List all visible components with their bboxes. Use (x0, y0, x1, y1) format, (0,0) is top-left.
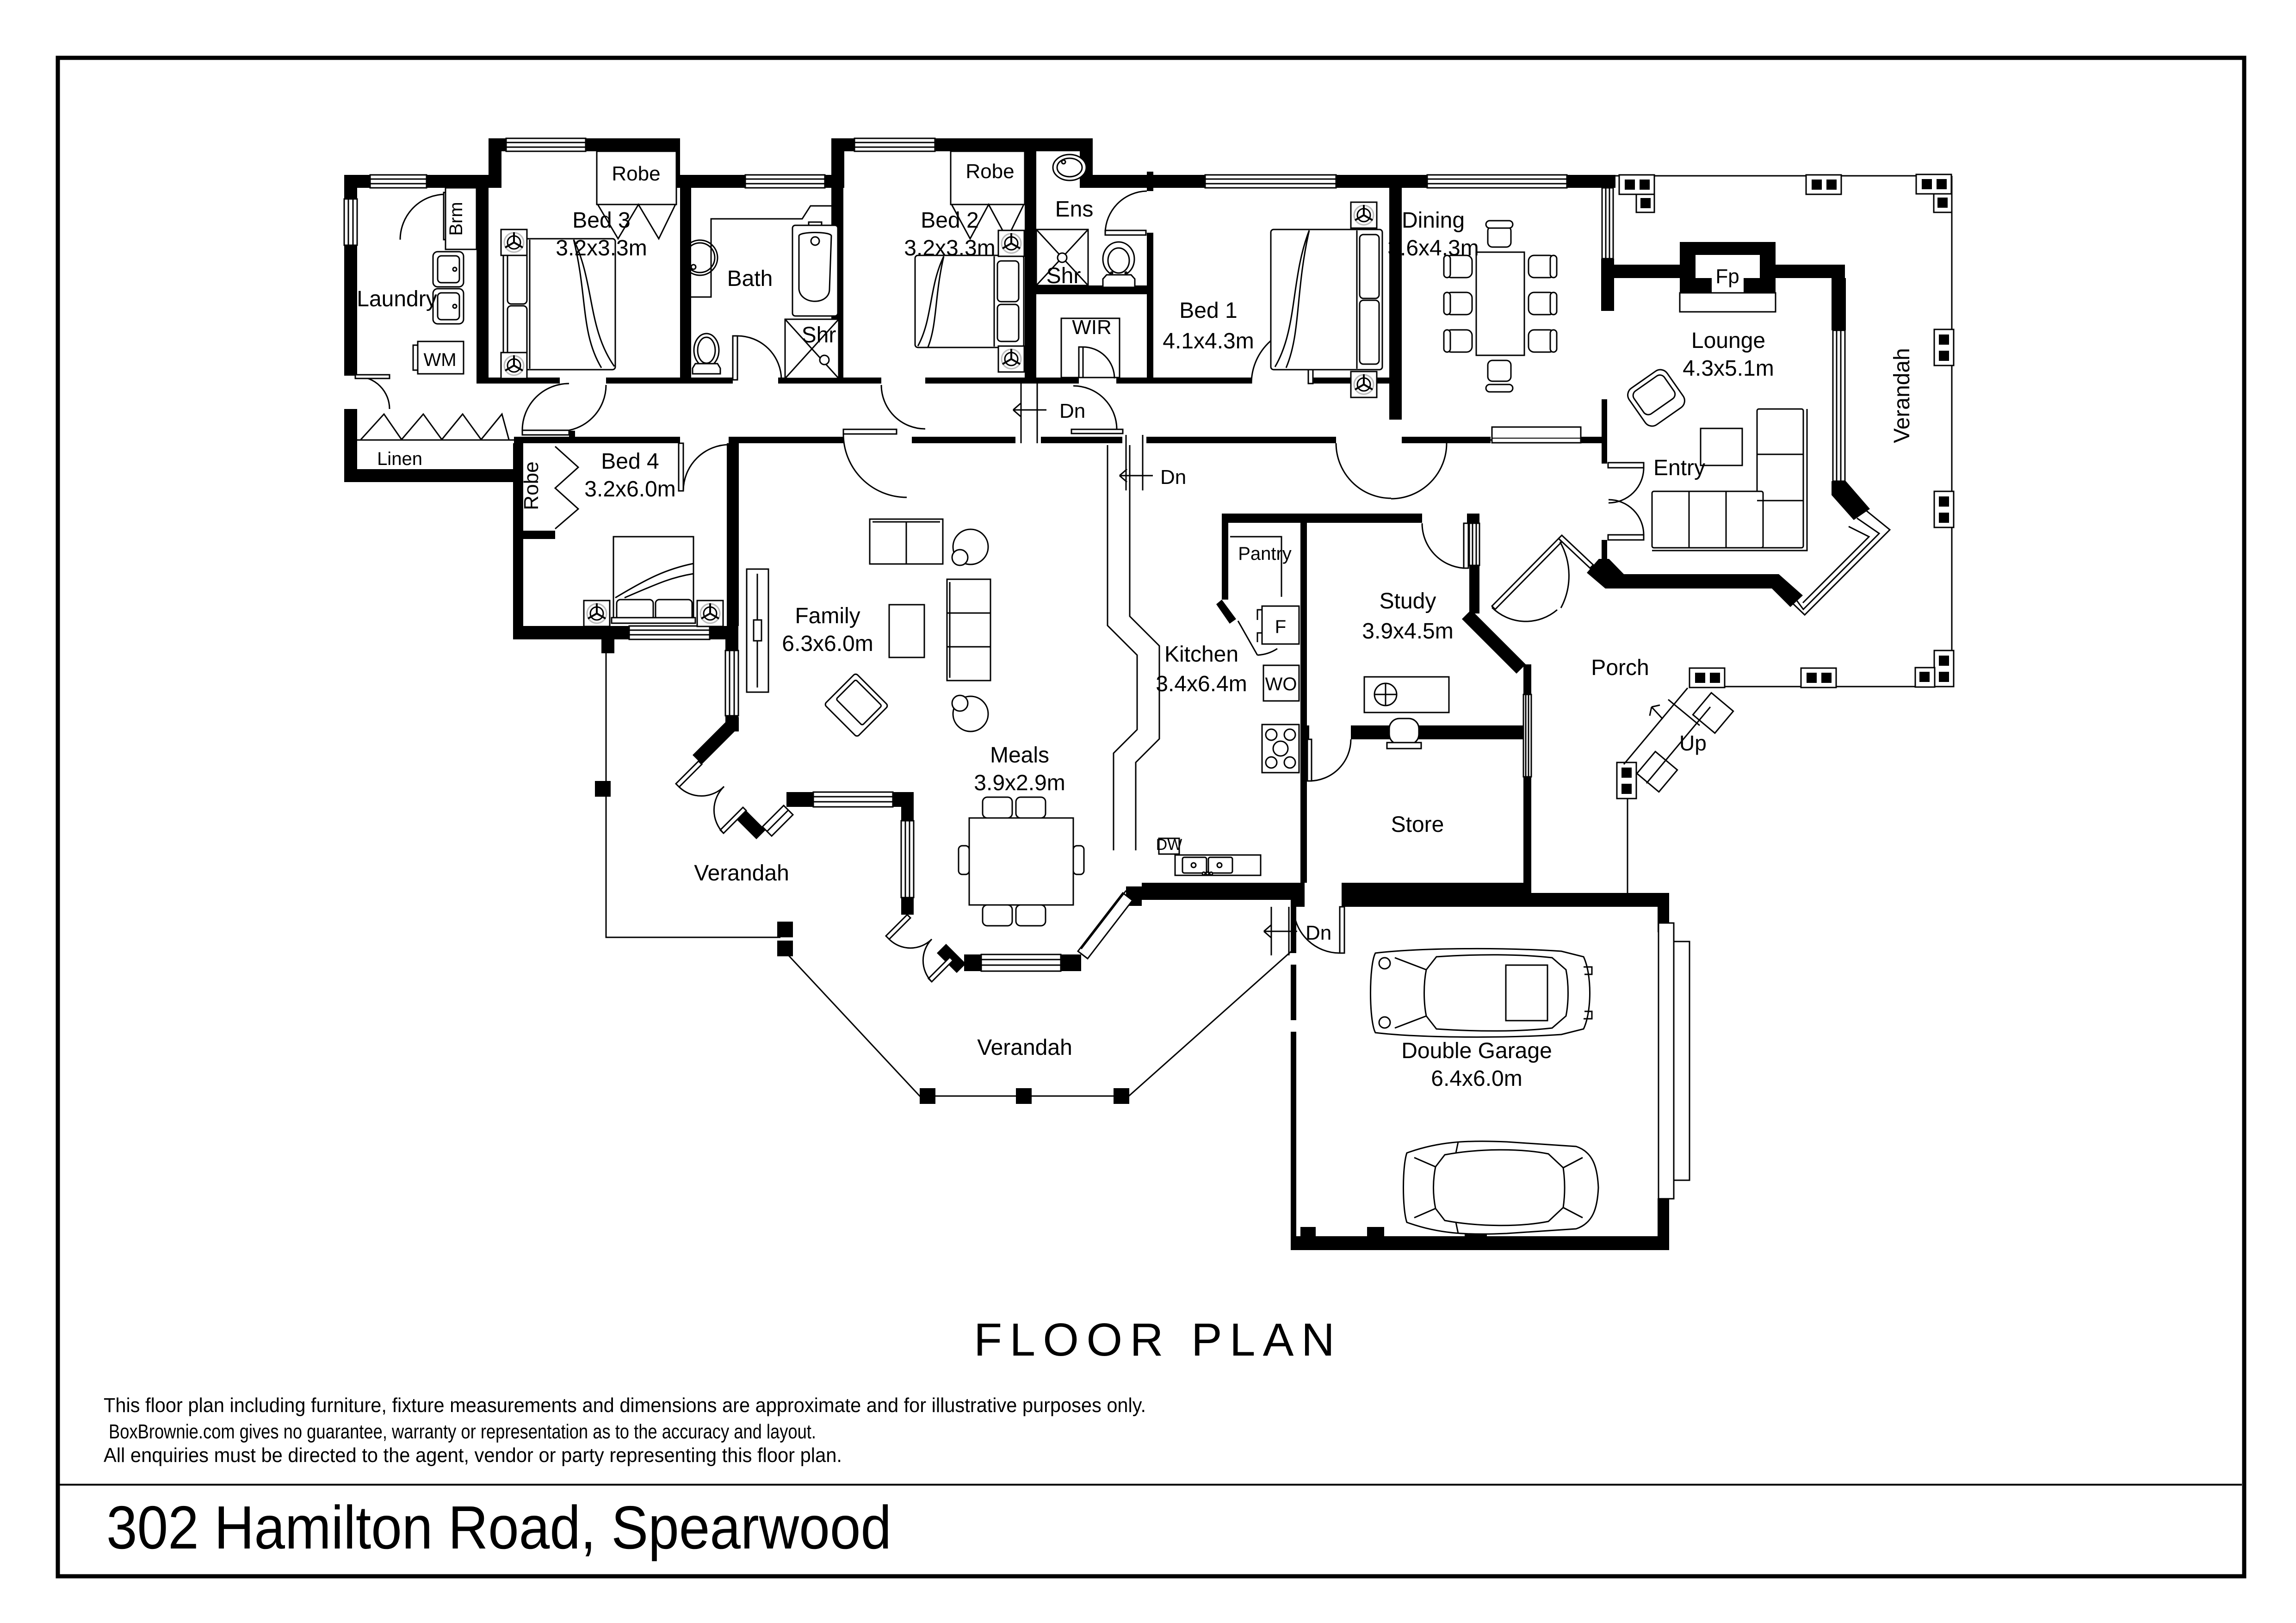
svg-text:6.4x6.0m: 6.4x6.0m (1431, 1066, 1522, 1091)
svg-text:Verandah: Verandah (977, 1035, 1072, 1060)
svg-text:Shr: Shr (1046, 264, 1081, 288)
svg-text:4.1x4.3m: 4.1x4.3m (1163, 329, 1254, 353)
svg-text:Bath: Bath (727, 266, 773, 291)
svg-text:Dn: Dn (1059, 400, 1085, 422)
svg-text:Robe: Robe (612, 162, 660, 185)
svg-text:Verandah: Verandah (694, 861, 789, 886)
svg-text:Shr: Shr (802, 323, 836, 347)
svg-text:Pantry: Pantry (1238, 544, 1292, 564)
svg-text:6.3x6.0m: 6.3x6.0m (782, 632, 873, 656)
svg-text:Double Garage: Double Garage (1401, 1039, 1552, 1063)
svg-text:4.3x5.1m: 4.3x5.1m (1683, 356, 1774, 381)
svg-text:Fp: Fp (1715, 265, 1739, 288)
svg-text:3.9x2.9m: 3.9x2.9m (974, 771, 1065, 795)
svg-text:BoxBrownie.com gives no guaran: BoxBrownie.com gives no guarantee, warra… (109, 1420, 816, 1443)
svg-text:Verandah: Verandah (1890, 348, 1914, 443)
svg-text:3.2x6.0m: 3.2x6.0m (584, 477, 675, 502)
svg-text:Porch: Porch (1591, 656, 1649, 680)
svg-text:3.2x3.3m: 3.2x3.3m (556, 236, 647, 260)
svg-text:Entry: Entry (1653, 456, 1705, 480)
svg-text:F: F (1275, 617, 1286, 637)
svg-text:Store: Store (1391, 812, 1444, 837)
svg-text:Bed 2: Bed 2 (921, 208, 978, 233)
svg-text:Bed 3: Bed 3 (572, 208, 630, 233)
svg-text:3.6x4.3m: 3.6x4.3m (1387, 236, 1479, 260)
svg-text:Robe: Robe (520, 461, 543, 510)
svg-text:Ens: Ens (1055, 197, 1094, 222)
svg-text:WO: WO (1265, 674, 1297, 694)
svg-text:3.4x6.4m: 3.4x6.4m (1156, 672, 1247, 696)
svg-text:Laundry: Laundry (357, 287, 437, 311)
svg-text:Meals: Meals (990, 743, 1049, 768)
svg-text:WIR: WIR (1072, 316, 1112, 339)
svg-text:Lounge: Lounge (1691, 328, 1765, 353)
svg-text:This floor plan including furn: This floor plan including furniture, fix… (104, 1394, 1146, 1417)
svg-text:Kitchen: Kitchen (1164, 642, 1238, 667)
svg-text:Dn: Dn (1160, 466, 1186, 489)
svg-text:Linen: Linen (377, 449, 422, 469)
svg-text:All enquiries must be directed: All enquiries must be directed to the ag… (104, 1444, 842, 1467)
svg-text:Brm: Brm (446, 202, 466, 235)
svg-text:Bed 4: Bed 4 (601, 449, 659, 474)
svg-text:Bed 1: Bed 1 (1179, 298, 1237, 323)
svg-text:DW: DW (1156, 836, 1182, 854)
svg-text:3.9x4.5m: 3.9x4.5m (1362, 619, 1453, 644)
svg-text:3.2x3.3m: 3.2x3.3m (904, 236, 995, 260)
svg-text:FLOOR PLAN: FLOOR PLAN (974, 1314, 1348, 1366)
svg-text:Dn: Dn (1306, 922, 1331, 944)
svg-text:Dining: Dining (1402, 208, 1465, 233)
svg-text:302 Hamilton Road, Spearwood: 302 Hamilton Road, Spearwood (106, 1493, 891, 1561)
svg-text:WM: WM (423, 350, 456, 370)
svg-text:Robe: Robe (965, 160, 1014, 183)
svg-text:Up: Up (1679, 731, 1707, 755)
svg-text:Study: Study (1380, 589, 1436, 613)
svg-text:Family: Family (795, 604, 860, 628)
